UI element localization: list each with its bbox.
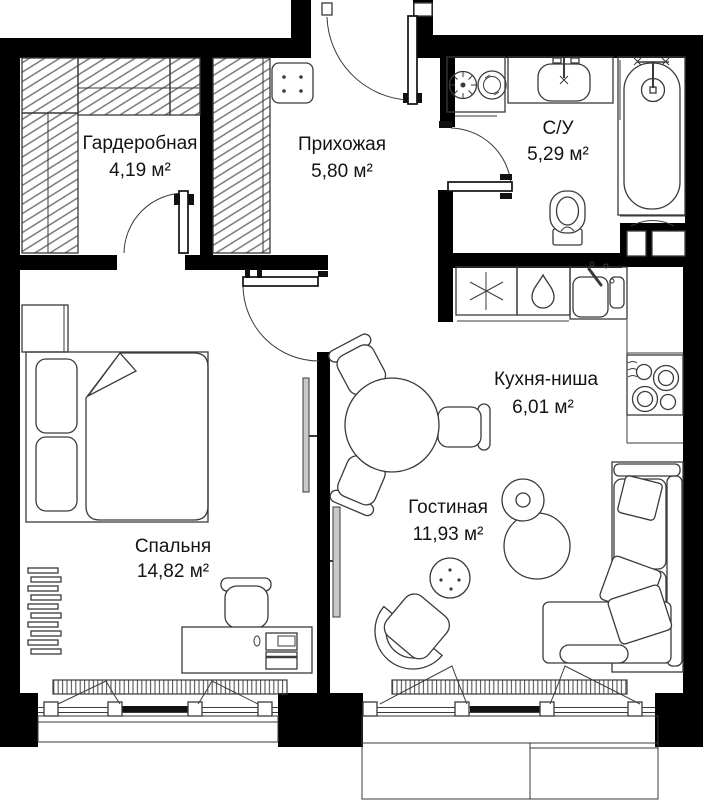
- wall-right-lower: [683, 267, 703, 693]
- bathroom-door-leaf-icon: [448, 182, 512, 191]
- window-frame: [363, 702, 377, 716]
- faucet-icon: [553, 58, 579, 84]
- dryer-icon: [478, 71, 506, 99]
- water-drop-icon: [532, 275, 554, 308]
- entrance-door-swing-icon: [327, 17, 408, 100]
- floor-plan-drawing: Гардеробная 4,19 м² Прихожая 5,80 м² С/У…: [0, 0, 703, 800]
- floor-plan: Гардеробная 4,19 м² Прихожая 5,80 м² С/У…: [0, 0, 703, 800]
- wall-top-left: [0, 38, 311, 58]
- asterisk-icon: [470, 272, 503, 310]
- bolster-cushion: [560, 645, 628, 663]
- floor-lamp-icon: [502, 479, 570, 579]
- radiator-icon: [392, 680, 627, 694]
- entry-stub-left: [291, 0, 311, 58]
- window-sill: [38, 716, 278, 742]
- hob-icon: [627, 355, 683, 415]
- duct-shaft-2: [652, 231, 685, 256]
- window-frame: [108, 702, 122, 716]
- room-label-kitchen: Кухня-ниша: [494, 369, 599, 390]
- wardrobe-shelving-icon: [22, 58, 78, 113]
- entry-frame-notch-right: [414, 3, 432, 16]
- radiator-icon: [28, 568, 61, 654]
- wardrobe-door-leaf-icon: [179, 191, 188, 253]
- window-frame: [258, 702, 272, 716]
- dining-table-icon: [345, 378, 439, 472]
- desk-chair-icon: [221, 578, 271, 628]
- room-label-living: Гостиная: [408, 497, 488, 518]
- room-area-living: 11,93 м²: [413, 524, 484, 545]
- duvet-fold: [88, 353, 136, 396]
- wardrobe-shelving-icon: [170, 58, 200, 115]
- kitchen-sink-icon: [573, 277, 608, 317]
- pillow-icon: [36, 437, 77, 511]
- wall-hallway-bottom: [185, 255, 328, 270]
- room-area-kitchen: 6,01 м²: [512, 397, 574, 418]
- room-label-bathroom: С/У: [542, 118, 574, 139]
- hallway-shelving-icon: [213, 58, 270, 253]
- chair-icon: [438, 404, 490, 450]
- wall-top-right: [413, 35, 703, 58]
- pier-bottom-right: [655, 693, 703, 747]
- dresser-icon: [22, 305, 68, 352]
- pier-bottom-middle: [278, 693, 363, 747]
- pillow-icon: [617, 475, 663, 521]
- radiator-icon: [53, 680, 287, 694]
- bedroom-window: [38, 680, 287, 742]
- sofa-icon: [543, 462, 683, 672]
- wall-bathroom-bottom: [440, 253, 622, 268]
- entrance-door-leaf-icon: [408, 16, 417, 104]
- room-hallway: [213, 58, 313, 253]
- tv-icon: [333, 507, 340, 617]
- bedroom-door-swing-icon: [243, 286, 319, 361]
- room-label-wardrobe: Гардеробная: [83, 133, 198, 154]
- wall-wardrobe-right: [200, 58, 213, 255]
- wardrobe-shelving-icon: [78, 58, 170, 115]
- room-label-bedroom: Спальня: [135, 536, 211, 557]
- bedroom-door-leaf-icon: [243, 277, 318, 286]
- entry-frame-notch-left: [322, 3, 332, 15]
- washing-machine-icon: [450, 72, 477, 99]
- pouf-icon: [272, 63, 313, 103]
- wardrobe-shelving-icon: [22, 113, 78, 253]
- wall-left: [0, 38, 20, 693]
- window-frame: [455, 702, 469, 716]
- side-table-icon: [430, 558, 470, 598]
- window-frame: [540, 702, 554, 716]
- room-area-wardrobe: 4,19 м²: [109, 160, 171, 181]
- room-area-hallway: 5,80 м²: [311, 161, 373, 182]
- room-bedroom: [22, 305, 317, 673]
- window-frame: [188, 702, 202, 716]
- balcony-icon: [362, 716, 658, 799]
- tv-icon: [303, 378, 309, 492]
- room-area-bathroom: 5,29 м²: [527, 144, 589, 165]
- bed-icon: [26, 352, 208, 522]
- room-label-hallway: Прихожая: [298, 134, 386, 155]
- room-wardrobe: [22, 58, 200, 253]
- desk-icon: [182, 627, 312, 673]
- room-area-bedroom: 14,82 м²: [137, 561, 209, 582]
- wall-wardrobe-bottom: [0, 255, 117, 270]
- pillow-icon: [36, 359, 77, 433]
- pier-bottom-left: [0, 693, 38, 747]
- living-window: [362, 666, 658, 799]
- wall-bedroom-living-divider: [317, 352, 330, 693]
- bathtub-icon: [618, 57, 685, 226]
- kitchen-sink-unit: [570, 267, 627, 319]
- window-frame: [44, 702, 58, 716]
- duct-shaft-1: [627, 231, 646, 256]
- toilet-icon: [550, 191, 585, 245]
